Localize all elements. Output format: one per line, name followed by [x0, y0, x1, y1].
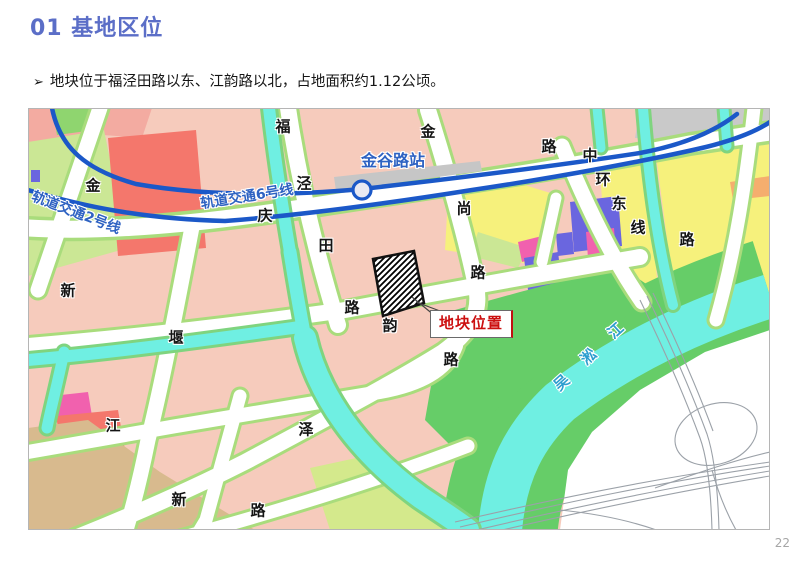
site-location-label: 地块位置 — [430, 310, 513, 338]
slide: { "slide": { "title": "01 基地区位", "bullet… — [0, 0, 800, 566]
page-number: 22 — [775, 536, 790, 550]
site-polygon — [373, 251, 424, 316]
page-title: 01 基地区位 — [30, 10, 163, 42]
map-canvas — [28, 108, 770, 530]
bullet-body: 地块位于福泾田路以东、江韵路以北，占地面积约1.12公顷。 — [50, 74, 445, 90]
bullet-text: ➢地块位于福泾田路以东、江韵路以北，占地面积约1.12公顷。 — [33, 70, 445, 91]
site-map — [28, 108, 770, 530]
bullet-arrow-icon: ➢ — [33, 75, 44, 90]
station-circle — [353, 181, 371, 199]
